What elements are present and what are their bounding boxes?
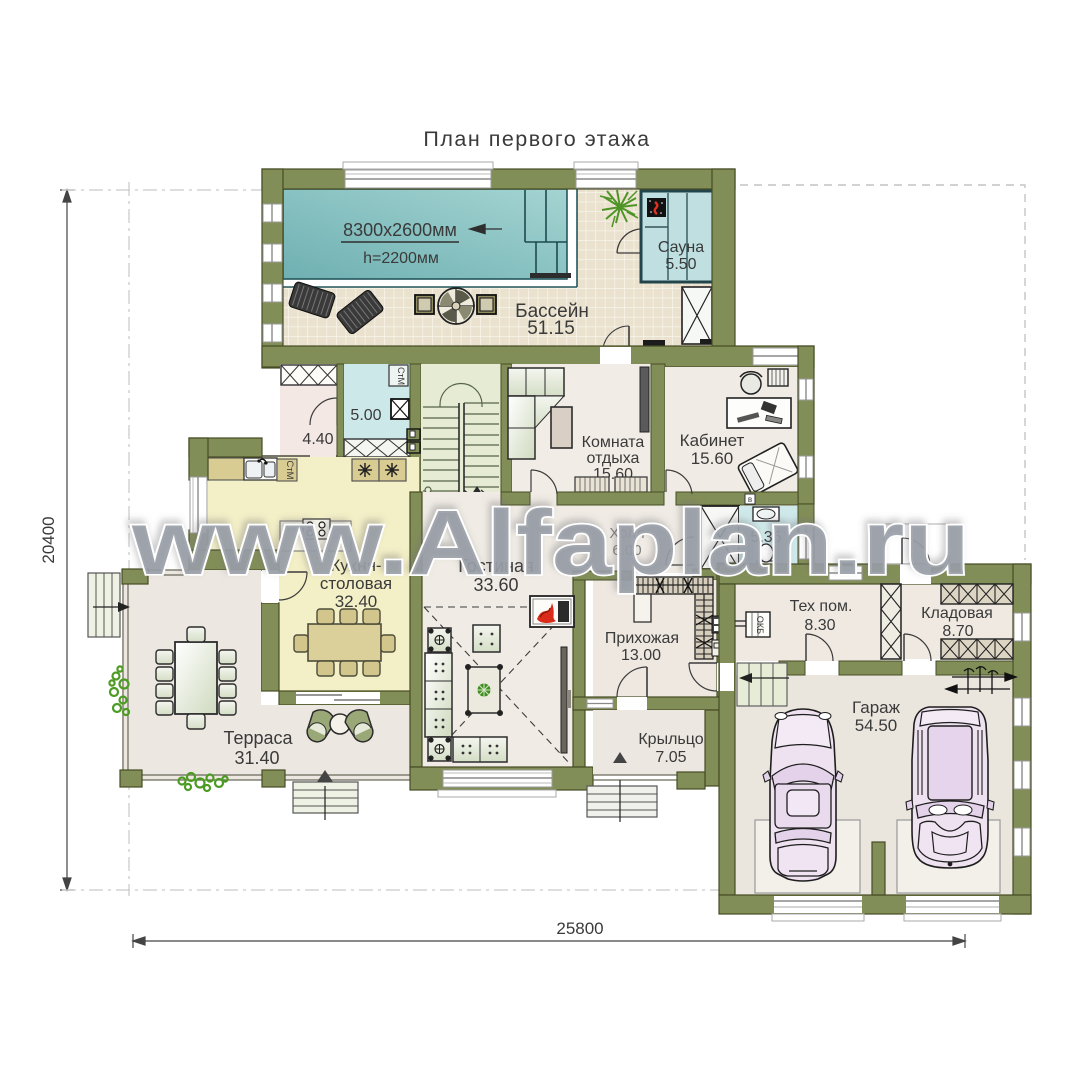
svg-text:Сауна: Сауна	[658, 239, 704, 256]
svg-text:План первого этажа: План первого этажа	[423, 127, 650, 151]
svg-text:7.05: 7.05	[655, 749, 686, 766]
svg-text:СтМ: СтМ	[284, 460, 295, 479]
svg-text:СтМ: СтМ	[396, 367, 406, 385]
svg-text:Прихожая: Прихожая	[605, 630, 679, 647]
svg-text:4.40: 4.40	[302, 431, 333, 448]
svg-text:20400: 20400	[39, 516, 58, 563]
svg-text:Кабинет: Кабинет	[680, 431, 745, 450]
svg-text:Тех пом.: Тех пом.	[790, 598, 853, 615]
svg-text:51.15: 51.15	[527, 318, 575, 339]
svg-text:31.40: 31.40	[234, 748, 279, 768]
svg-text:8.70: 8.70	[942, 623, 973, 640]
svg-text:отдыха: отдыха	[587, 450, 640, 467]
svg-text:Крыльцо: Крыльцо	[638, 731, 703, 748]
svg-text:8300х2600мм: 8300х2600мм	[343, 220, 457, 240]
svg-text:54.50: 54.50	[855, 716, 898, 735]
svg-text:h=2200мм: h=2200мм	[363, 250, 439, 267]
svg-text:32.40: 32.40	[335, 592, 378, 611]
svg-text:Гараж: Гараж	[852, 698, 901, 717]
svg-text:www.Alfaplan.ru: www.Alfaplan.ru	[131, 492, 970, 594]
svg-text:5.50: 5.50	[665, 256, 696, 273]
svg-text:5.00: 5.00	[350, 407, 381, 424]
svg-text:13.00: 13.00	[621, 647, 661, 664]
svg-text:Кладовая: Кладовая	[921, 605, 993, 622]
svg-text:8.30: 8.30	[804, 617, 835, 634]
svg-text:25800: 25800	[556, 919, 603, 938]
svg-text:Комната: Комната	[582, 434, 645, 451]
svg-text:Терраса: Терраса	[223, 728, 293, 748]
svg-text:15.60: 15.60	[691, 449, 734, 468]
svg-text:ОКБ: ОКБ	[755, 616, 765, 634]
